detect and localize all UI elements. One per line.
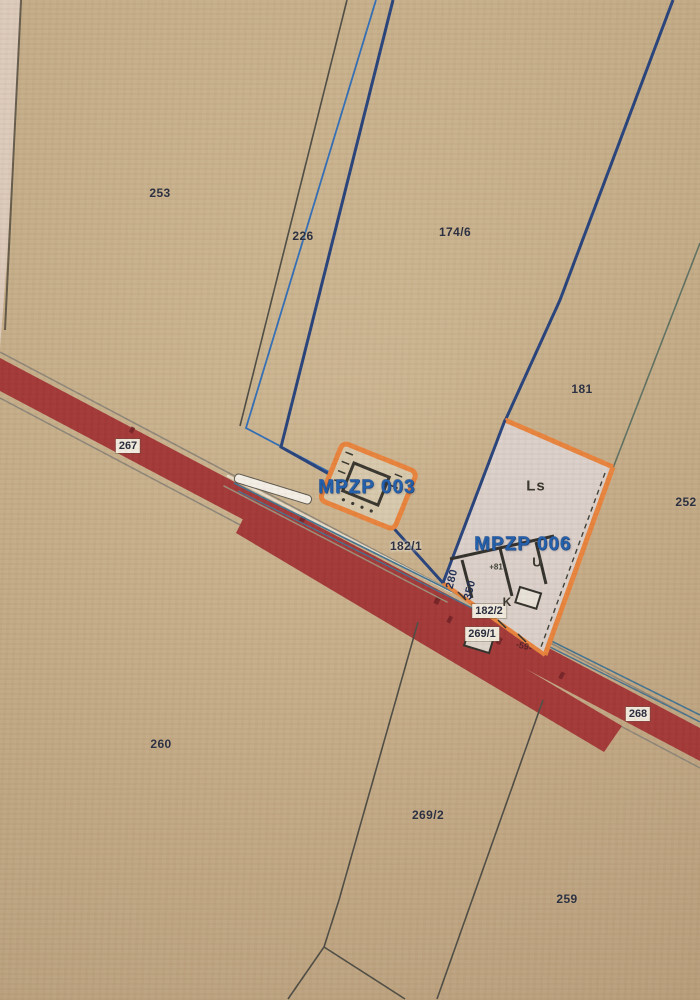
map-photo: 253 226 174/6 181 252 260 269/2 259 182/… (0, 0, 700, 1000)
plan-boundary-navy-east (505, 0, 673, 421)
plan-label-mpzp-003: MPZP 003 (318, 477, 415, 499)
parcel-label-269-2: 269/2 (412, 808, 444, 822)
zone-label-k: K (503, 595, 512, 609)
parcel-label-259: 259 (556, 892, 577, 906)
parcel-label-182-2: 182/2 (472, 604, 506, 618)
parcel-label-226: 226 (292, 229, 313, 243)
road-parcel-label-267: 267 (116, 439, 140, 453)
boundary-south-branch (324, 947, 405, 999)
parcel-label-253: 253 (149, 186, 170, 200)
map-geometry (0, 0, 700, 1000)
road-parcel-label-268: 268 (626, 707, 650, 721)
parcel-label-252: 252 (675, 495, 696, 509)
parcel-label-181: 181 (571, 382, 592, 396)
boundary-181-252 (613, 243, 700, 468)
parcel-label-182-1: 182/1 (390, 539, 422, 553)
road-band-267-268 (0, 352, 700, 768)
zone-label-u: U (532, 555, 541, 570)
plan-label-mpzp-006: MPZP 006 (474, 534, 571, 556)
boundary-260-269-2 (288, 622, 418, 999)
annotation-81: +81 (489, 563, 503, 572)
road-parcel-label-269-1: 269/1 (465, 627, 499, 641)
boundary-253-226 (240, 0, 347, 426)
parcel-label-260: 260 (150, 737, 171, 751)
zone-label-ls: Ls (526, 478, 546, 495)
boundary-269-2-259 (437, 700, 543, 999)
parcel-label-174-6: 174/6 (439, 225, 471, 239)
